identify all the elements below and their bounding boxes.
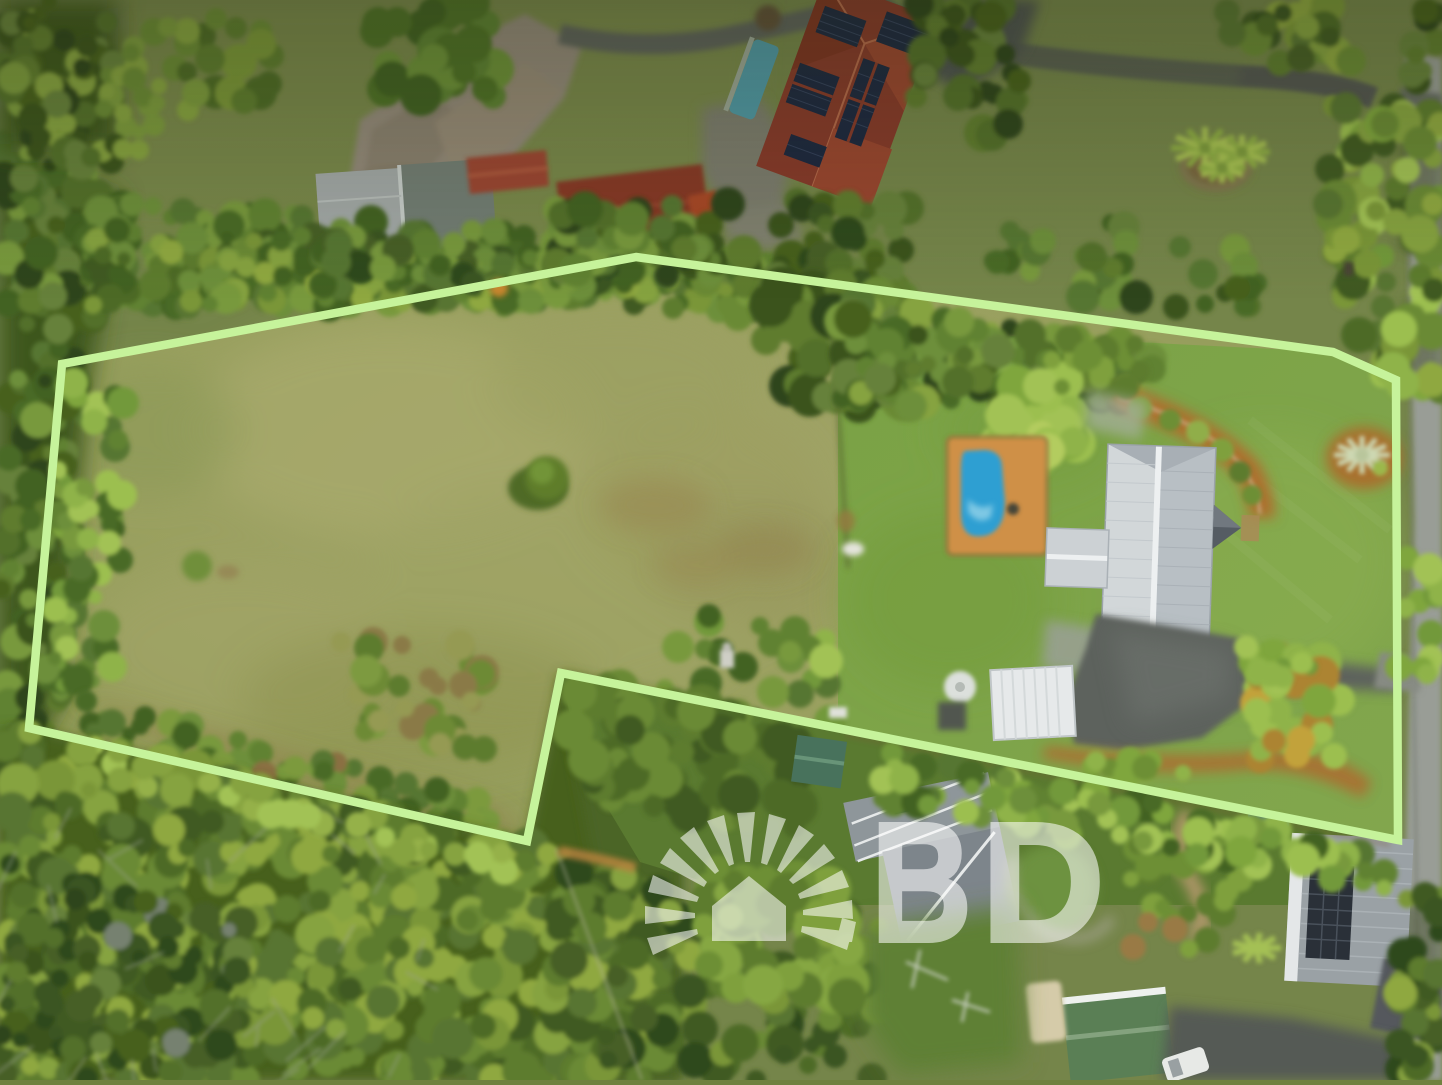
svg-text:D: D [981,788,1105,978]
svg-text:B: B [871,788,972,978]
